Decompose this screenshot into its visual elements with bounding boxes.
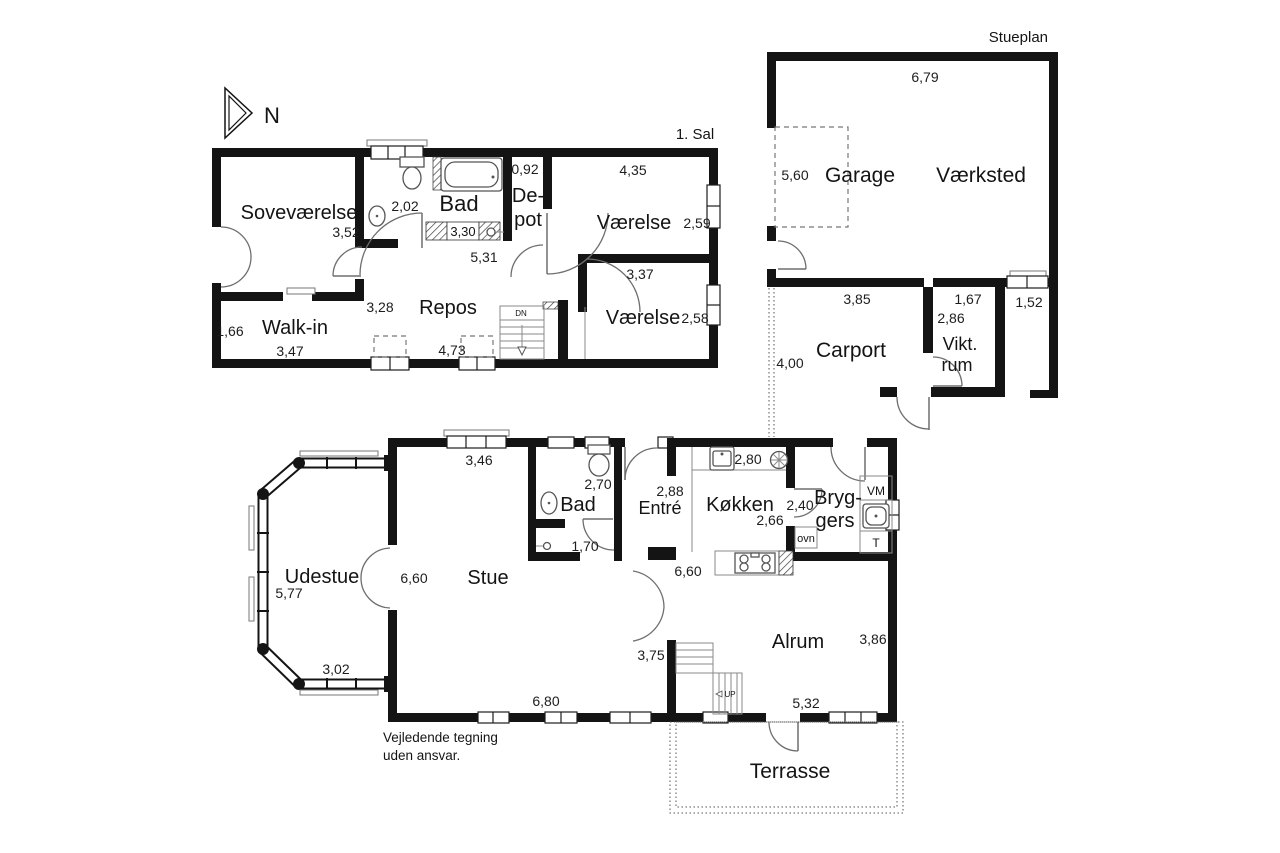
room-bryggers: Bryg- (814, 487, 862, 509)
disclaimer: Vejledende tegning uden ansvar. (383, 730, 498, 763)
svg-text:2,02: 2,02 (391, 198, 418, 214)
svg-text:gers: gers (816, 510, 855, 532)
outbuilding-plan: Stueplan (767, 29, 1058, 437)
room-sovevaerelse: Soveværelse (241, 202, 358, 224)
svg-text:6,60: 6,60 (674, 563, 701, 579)
room-stue: Stue (467, 567, 508, 589)
ground-outer-walls (388, 438, 897, 722)
svg-text:6,79: 6,79 (911, 69, 938, 85)
dryer-label: T (872, 536, 880, 550)
washer-label: VM (867, 484, 885, 498)
room-alrum: Alrum (772, 631, 824, 653)
stairs-dn-label: DN (515, 309, 527, 318)
dormer-outline (461, 336, 493, 357)
svg-text:4,35: 4,35 (619, 162, 646, 178)
room-repos: Repos (419, 297, 477, 319)
udestue-doors (361, 548, 390, 578)
svg-text:3,46: 3,46 (465, 452, 492, 468)
svg-text:2,80: 2,80 (734, 451, 761, 467)
room-vaerelse-se: Værelse (606, 307, 680, 329)
floor-plan-drawing: N 1. Sal (0, 0, 1280, 853)
faucet-icon (544, 543, 551, 550)
room-garage: Garage (825, 164, 895, 187)
sliding-door (287, 288, 315, 294)
svg-text:1,52: 1,52 (1015, 294, 1042, 310)
upper-floor-plan: 1. Sal (212, 126, 720, 370)
room-carport: Carport (816, 339, 886, 362)
ground-plan-title: Stueplan (989, 29, 1048, 46)
svg-text:3,85: 3,85 (843, 291, 870, 307)
room-entre: Entré (638, 498, 681, 518)
svg-text:5,31: 5,31 (470, 249, 497, 265)
oven-label: ovn (797, 533, 815, 545)
room-viktualierum: Vikt. (943, 334, 978, 354)
svg-text:3,86: 3,86 (859, 631, 886, 647)
north-label: N (264, 103, 280, 128)
svg-text:3,75: 3,75 (637, 647, 664, 663)
svg-text:2,70: 2,70 (584, 476, 611, 492)
valve-icon (487, 228, 495, 236)
dormer-outline (374, 336, 406, 357)
terrasse-door (769, 722, 798, 751)
svg-text:2,66: 2,66 (756, 512, 783, 528)
svg-text:2,88: 2,88 (656, 483, 683, 499)
room-bad-ground: Bad (560, 494, 596, 516)
svg-text:1,67: 1,67 (954, 291, 981, 307)
svg-text:3,47: 3,47 (276, 343, 303, 359)
floor-plan-page: { "plan_titles": { "upper": "1. Sal", "o… (0, 0, 1280, 853)
toilet-icon (400, 157, 424, 167)
room-vaerelse-ne: Værelse (597, 212, 671, 234)
ground-labels: Udestue 5,77 3,02 Stue 3,46 6,60 6,80 Ba… (275, 451, 886, 783)
svg-text:4,00: 4,00 (776, 355, 803, 371)
svg-text:3,37: 3,37 (626, 266, 653, 282)
stove-panel (751, 553, 759, 557)
svg-text:2,58: 2,58 (681, 310, 708, 326)
stairs-up: UP (676, 643, 742, 714)
north-arrow-icon: N (225, 88, 280, 138)
svg-text:6,60: 6,60 (400, 570, 427, 586)
ground-floor-plan: UP (249, 430, 903, 813)
svg-text:rum: rum (942, 355, 973, 375)
svg-text:5,60: 5,60 (781, 167, 808, 183)
svg-text:3,52: 3,52 (332, 224, 359, 240)
alrum-doors (633, 571, 664, 607)
ground-doors (361, 447, 865, 751)
room-terrasse: Terrasse (750, 760, 831, 783)
disclaimer-line2: uden ansvar. (383, 748, 460, 763)
svg-text:1,70: 1,70 (571, 538, 598, 554)
svg-text:5,32: 5,32 (792, 695, 819, 711)
svg-text:2,86: 2,86 (937, 310, 964, 326)
svg-text:5,77: 5,77 (275, 585, 302, 601)
stairs-down: DN (500, 306, 544, 359)
room-walkin: Walk-in (262, 317, 328, 339)
toilet-icon (588, 445, 610, 454)
svg-text:2,40: 2,40 (786, 497, 813, 513)
outbuilding-walls (767, 52, 1058, 398)
room-bad-upper: Bad (439, 191, 478, 216)
svg-text:3,30: 3,30 (450, 224, 475, 239)
svg-text:3,28: 3,28 (366, 299, 393, 315)
svg-text:4,73: 4,73 (438, 342, 465, 358)
disclaimer-line1: Vejledende tegning (383, 730, 498, 745)
svg-text:pot: pot (514, 209, 542, 231)
svg-text:2,59: 2,59 (683, 215, 710, 231)
svg-text:3,02: 3,02 (322, 661, 349, 677)
room-depot: De- (512, 185, 544, 207)
svg-text:6,80: 6,80 (532, 693, 559, 709)
upper-floor-title: 1. Sal (676, 126, 714, 143)
room-vaerksted: Værksted (936, 164, 1026, 187)
stairs-up-label: UP (724, 690, 735, 699)
svg-text:0,92: 0,92 (511, 161, 538, 177)
front-door (625, 448, 657, 480)
svg-text:1,66: 1,66 (216, 323, 243, 339)
